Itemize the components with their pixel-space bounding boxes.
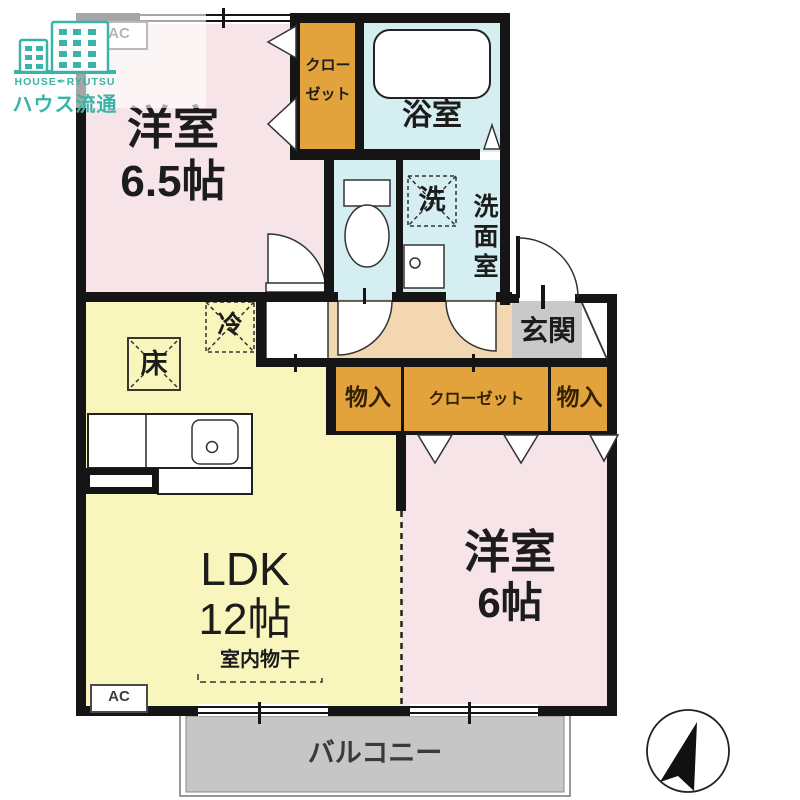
bath-label: 浴室: [372, 100, 492, 132]
washbasin-icon: [404, 245, 444, 288]
wall: [324, 149, 334, 302]
logo-jp-text: ハウス流通: [2, 88, 128, 117]
closet-mid-label: クローゼット: [404, 391, 549, 408]
wall: [607, 294, 617, 716]
logo-en-left: HOUSE: [15, 76, 57, 88]
washroom-label: 洗面室: [467, 178, 497, 298]
washer-label: 洗: [408, 186, 456, 215]
wall: [76, 13, 86, 716]
fridge-label: 冷: [206, 312, 254, 339]
wall: [396, 433, 406, 511]
closet-top-label: クローゼット: [302, 52, 354, 109]
ldk-size: 12帖: [160, 596, 330, 644]
storage-left-label: 物入: [334, 385, 402, 410]
bedroom2-size: 6帖: [430, 580, 590, 625]
logo-en-text: HOUSE✒RYUTSU: [6, 76, 124, 88]
floorplan-image: 洋室 6.5帖 クローゼット 浴室 洗 洗面室 玄関 冷 床 LDK 12帖 室…: [0, 0, 800, 800]
entrance-label: 玄関: [508, 316, 588, 346]
logo-en-right: RYUTSU: [67, 76, 116, 88]
window: [410, 704, 538, 716]
window: [198, 704, 328, 716]
wall: [256, 358, 617, 367]
wall: [76, 292, 338, 302]
kitchen-counter: [84, 414, 252, 494]
wall: [392, 292, 446, 302]
indoor-drying-label: 室内物干: [190, 650, 330, 672]
wall: [496, 292, 512, 302]
pen-icon: ✒: [57, 76, 67, 88]
ldk-door-panel: [266, 301, 328, 361]
balcony-label: バルコニー: [255, 739, 495, 768]
floor-hatch-label: 床: [128, 350, 180, 379]
wall: [396, 160, 403, 292]
bathtub-icon: [374, 30, 490, 98]
bedroom1-size: 6.5帖: [93, 158, 253, 206]
wall: [256, 292, 266, 366]
bedroom1-door-leaf: [266, 283, 326, 292]
sink-drain-icon: [207, 442, 218, 453]
storage-right-label: 物入: [551, 385, 608, 410]
wall: [290, 149, 480, 160]
compass-icon: [647, 710, 729, 792]
ldk-label: LDK: [160, 545, 330, 595]
wall: [355, 13, 364, 153]
front-door-arc: [516, 236, 578, 298]
ac-bottom-box: AC: [90, 684, 148, 713]
toilet-icon: [344, 180, 390, 267]
wall: [500, 13, 510, 305]
building-logo-icon: [0, 14, 132, 78]
wall: [326, 431, 608, 435]
bedroom2-label: 洋室: [430, 528, 590, 578]
